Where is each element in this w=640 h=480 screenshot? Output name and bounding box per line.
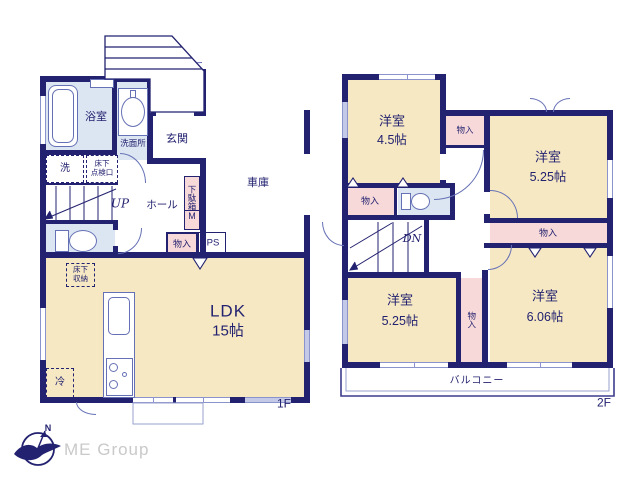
- closet-2f-h-label: 物入: [539, 228, 557, 238]
- room-label-ldk: LDK: [210, 301, 246, 320]
- compass-icon: [14, 431, 61, 465]
- closet-2f-a-label: 物入: [456, 126, 473, 136]
- room-label-western2: 洋室: [535, 151, 561, 166]
- floor-label-1f: 1F: [277, 397, 291, 410]
- room-label-western4-size: 6.06帖: [527, 310, 564, 324]
- room-label-entrance: 玄関: [166, 133, 188, 145]
- room-label-hall: ホール: [146, 200, 178, 212]
- plan-linework: [0, 0, 640, 480]
- stairs-down-label: DN: [403, 233, 421, 245]
- compass-north-label: N: [45, 423, 52, 433]
- floor-label-2f: 2F: [597, 396, 611, 409]
- room-label-western3: 洋室: [387, 294, 413, 309]
- logo-company-name: ME Group: [64, 440, 149, 460]
- stairs-up-label: UP: [111, 197, 129, 210]
- room-label-washroom: 洗面所: [120, 139, 146, 149]
- closet-markers: [193, 178, 596, 269]
- room-label-western4: 洋室: [532, 290, 558, 305]
- closet-2f-v-label: 物入: [466, 312, 476, 329]
- room-label-western2-size: 5.25帖: [530, 170, 567, 184]
- floorplan-canvas: 下駄箱 M: [0, 0, 640, 480]
- stairs-1f: [45, 186, 116, 220]
- closet-1f-label: 物入: [173, 239, 191, 249]
- room-label-western1: 洋室: [379, 115, 405, 130]
- room-label-western1-size: 4.5帖: [377, 133, 407, 147]
- entrance-porch: [105, 36, 204, 112]
- room-label-western3-size: 5.25帖: [382, 314, 419, 328]
- stairs-2f: [350, 222, 422, 272]
- room-label-bathroom: 浴室: [85, 111, 107, 123]
- pipe-space-label: PS: [207, 239, 220, 250]
- room-label-ldk-size: 15帖: [212, 324, 244, 341]
- balcony-label: バルコニー: [450, 375, 505, 386]
- terrace-step: [133, 403, 203, 424]
- room-label-garage: 車庫: [247, 177, 269, 189]
- closet-2f-b-label: 物入: [361, 196, 379, 206]
